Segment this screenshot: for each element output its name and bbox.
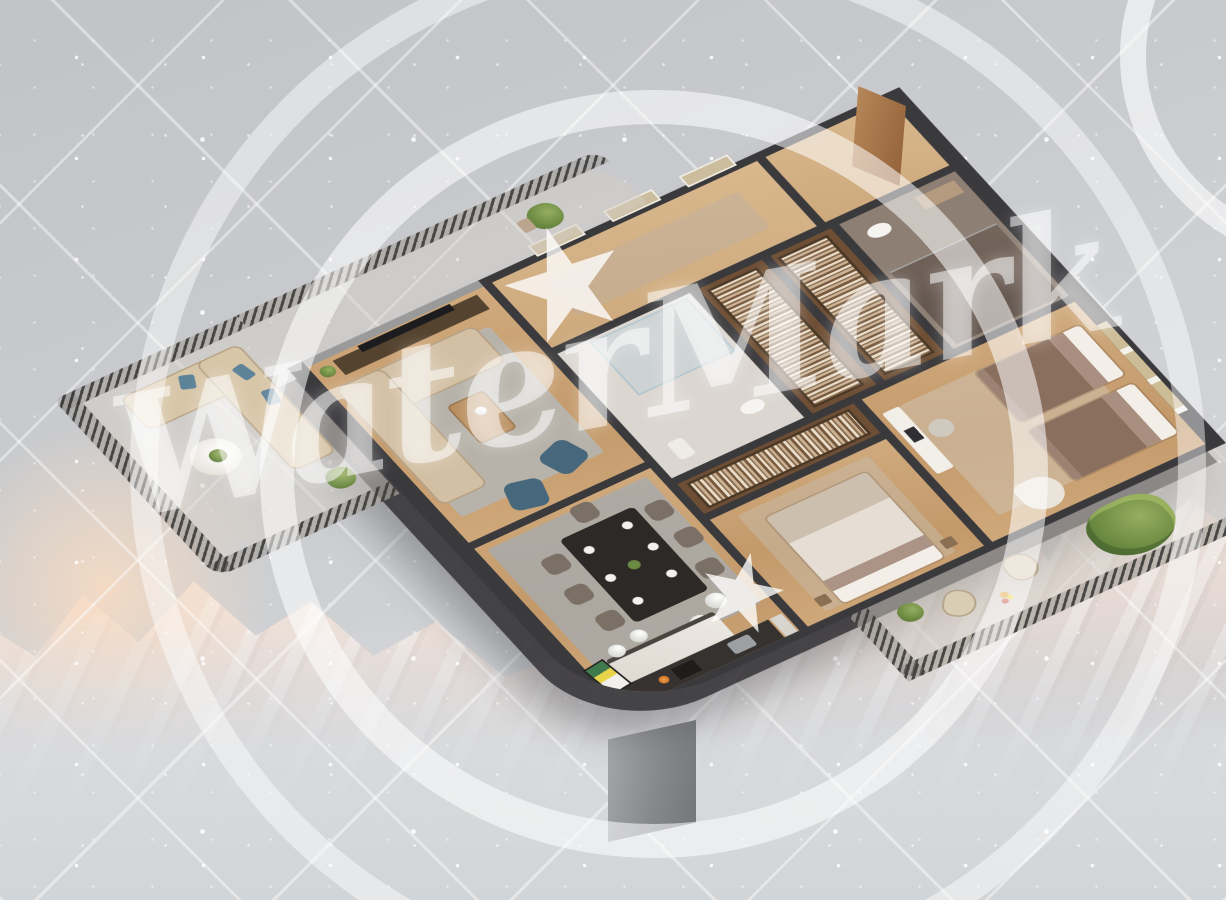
floor-plan-render: WaterMark <box>0 0 1226 900</box>
wicker-chair <box>996 549 1045 585</box>
bathroom-sink <box>666 437 696 461</box>
blue-pillow <box>178 374 197 390</box>
plant-icon <box>317 364 339 380</box>
toilet-icon <box>737 396 769 417</box>
potted-plant <box>320 463 361 492</box>
watermark-ring-corner <box>1120 0 1226 272</box>
toilet-icon <box>863 220 895 241</box>
vanity <box>915 180 964 210</box>
potted-plant <box>892 600 928 625</box>
wicker-chair <box>940 589 978 619</box>
terrace-railing <box>206 482 400 578</box>
